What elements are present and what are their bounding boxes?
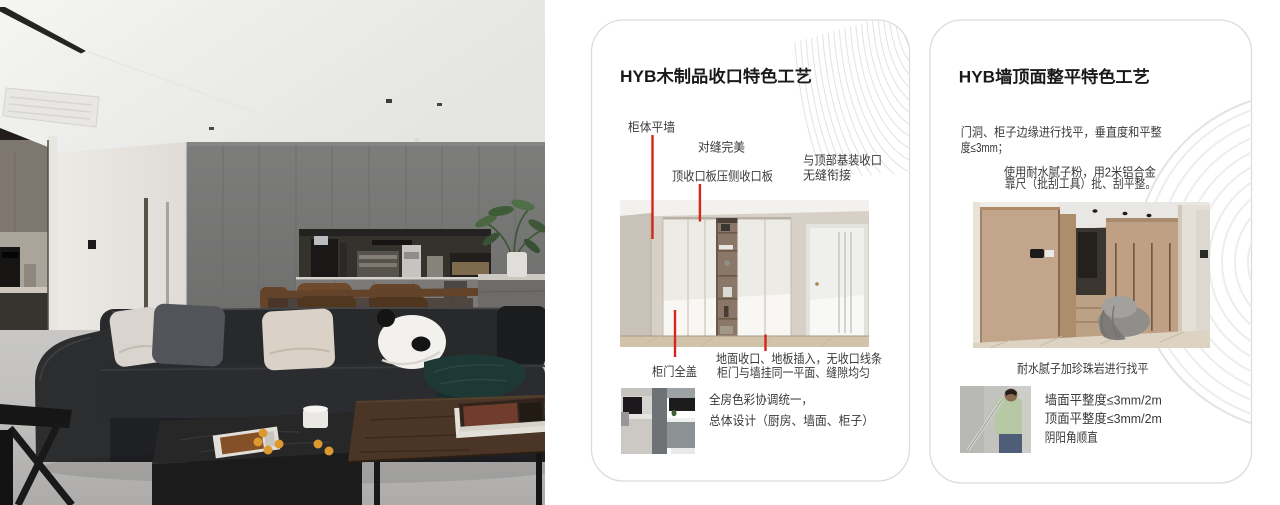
svg-text:耐水腻子加珍珠岩进行找平: 耐水腻子加珍珠岩进行找平 xyxy=(1017,361,1149,376)
svg-text:对缝完美: 对缝完美 xyxy=(698,140,745,155)
svg-text:地面收口、地板插入，无收口线条: 地面收口、地板插入，无收口线条 xyxy=(716,352,882,366)
svg-text:墙面平整度≤3mm/2m: 墙面平整度≤3mm/2m xyxy=(1045,392,1162,407)
svg-text:靠尺（批刮工具）批、刮平整。: 靠尺（批刮工具）批、刮平整。 xyxy=(1005,176,1156,191)
svg-text:顶收口板压侧收口板: 顶收口板压侧收口板 xyxy=(672,170,773,184)
svg-text:全房色彩协调统一，: 全房色彩协调统一， xyxy=(709,392,813,407)
svg-text:门洞、柜子边缘进行找平，垂直度和平整: 门洞、柜子边缘进行找平，垂直度和平整 xyxy=(961,124,1162,139)
svg-text:柜体平墙: 柜体平墙 xyxy=(628,121,675,135)
svg-text:与顶部基装收口: 与顶部基装收口 xyxy=(803,153,882,168)
svg-text:顶面平整度≤3mm/2m: 顶面平整度≤3mm/2m xyxy=(1045,411,1162,426)
svg-text:阴阳角顺直: 阴阳角顺直 xyxy=(1045,430,1098,445)
svg-text:HYB墙顶面整平特色工艺: HYB墙顶面整平特色工艺 xyxy=(959,67,1150,87)
svg-text:柜门全盖: 柜门全盖 xyxy=(652,364,697,379)
svg-text:度≤3mm；: 度≤3mm； xyxy=(961,140,1008,155)
svg-text:HYB木制品收口特色工艺: HYB木制品收口特色工艺 xyxy=(620,66,812,86)
svg-text:总体设计（厨房、墙面、柜子）: 总体设计（厨房、墙面、柜子） xyxy=(709,413,874,428)
svg-text:柜门与墙挂同一平面、缝隙均匀: 柜门与墙挂同一平面、缝隙均匀 xyxy=(717,365,870,380)
svg-text:无缝衔接: 无缝衔接 xyxy=(803,168,851,183)
